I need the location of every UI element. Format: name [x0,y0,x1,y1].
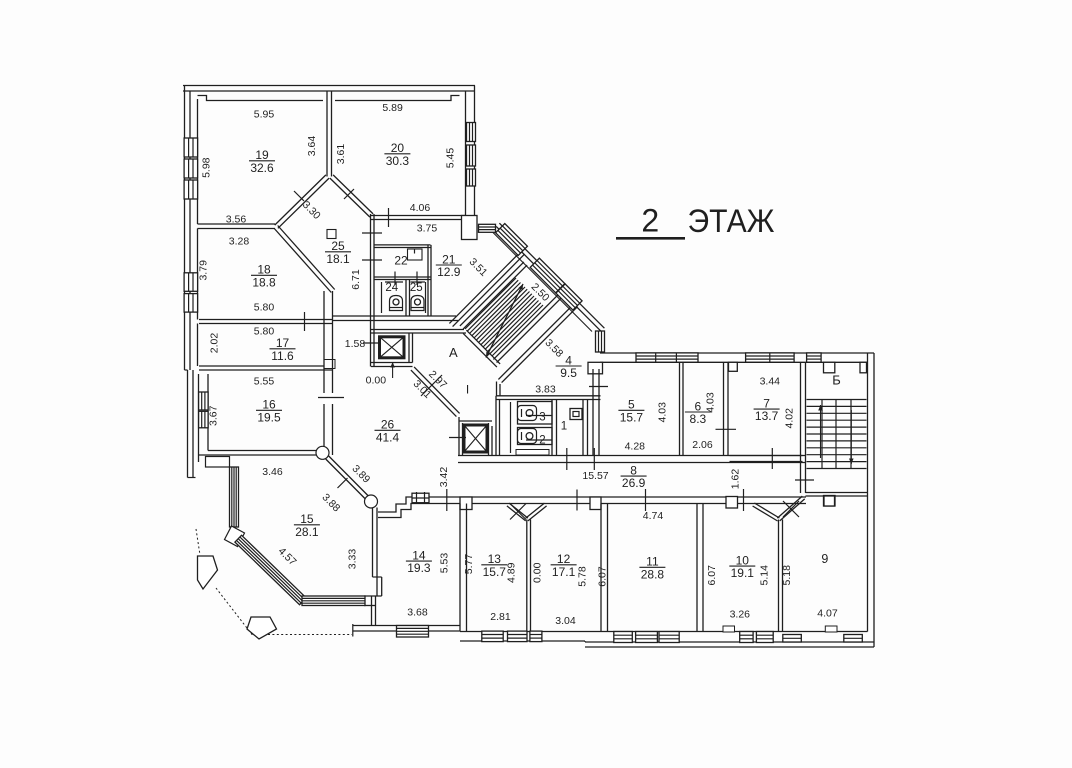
svg-text:3.61: 3.61 [335,144,347,165]
svg-text:8.3: 8.3 [690,412,707,426]
svg-text:17.1: 17.1 [552,565,576,579]
svg-text:4.07: 4.07 [817,608,838,620]
svg-text:4.03: 4.03 [705,392,717,413]
svg-text:19.1: 19.1 [731,566,755,580]
svg-text:4.28: 4.28 [625,441,646,453]
svg-text:4.03: 4.03 [657,402,669,423]
svg-text:24: 24 [385,282,398,294]
svg-text:5.18: 5.18 [781,565,793,586]
svg-text:32.6: 32.6 [250,161,274,175]
svg-text:9.5: 9.5 [560,366,577,380]
svg-text:5.95: 5.95 [254,109,275,121]
svg-text:5.78: 5.78 [577,566,589,587]
svg-text:3.56: 3.56 [226,214,247,226]
svg-text:2.81: 2.81 [490,611,511,623]
svg-text:3.83: 3.83 [535,384,556,396]
svg-text:18.1: 18.1 [326,252,350,266]
svg-text:1: 1 [561,421,567,433]
svg-text:4.74: 4.74 [643,510,664,522]
svg-text:6.07: 6.07 [597,566,609,587]
svg-text:2.06: 2.06 [692,439,713,451]
svg-text:2: 2 [641,203,659,239]
svg-text:13.7: 13.7 [755,409,779,423]
svg-text:15.7: 15.7 [483,565,507,579]
svg-text:3.28: 3.28 [229,235,250,247]
svg-text:5.45: 5.45 [445,148,457,169]
svg-text:5.80: 5.80 [254,302,275,314]
svg-text:3.42: 3.42 [438,467,450,488]
svg-text:11.6: 11.6 [271,349,294,363]
svg-text:19.3: 19.3 [407,561,431,575]
svg-text:9: 9 [821,552,828,566]
svg-text:0.00: 0.00 [366,375,387,387]
svg-text:6.71: 6.71 [350,269,362,290]
svg-text:3.04: 3.04 [555,615,576,627]
svg-text:ЭТАЖ: ЭТАЖ [688,203,775,239]
svg-text:2: 2 [539,435,545,447]
svg-text:3.44: 3.44 [760,375,781,387]
svg-text:15.7: 15.7 [620,410,644,424]
svg-text:1.62: 1.62 [730,469,742,490]
svg-text:6.07: 6.07 [706,565,718,586]
svg-text:3.79: 3.79 [198,260,210,281]
svg-text:4.02: 4.02 [783,408,795,429]
svg-text:30.3: 30.3 [386,154,410,168]
svg-text:2.02: 2.02 [209,333,221,354]
svg-text:19.5: 19.5 [257,410,281,424]
svg-text:28.8: 28.8 [641,567,665,581]
svg-text:3.33: 3.33 [347,549,359,570]
svg-text:А: А [449,345,458,360]
svg-text:5.55: 5.55 [254,376,275,388]
svg-text:3.75: 3.75 [417,223,438,235]
svg-text:4.89: 4.89 [505,562,517,583]
svg-text:I: I [466,383,469,397]
svg-text:28.1: 28.1 [295,525,319,539]
svg-text:3.26: 3.26 [730,609,751,621]
svg-text:25: 25 [410,282,423,294]
svg-text:3.67: 3.67 [208,405,220,426]
svg-text:41.4: 41.4 [376,430,400,444]
svg-text:5.53: 5.53 [439,553,451,574]
svg-text:15.57: 15.57 [582,470,608,482]
svg-text:18.8: 18.8 [252,275,276,289]
svg-text:1.58: 1.58 [345,338,366,350]
svg-text:0.00: 0.00 [532,562,544,583]
svg-text:5.89: 5.89 [382,102,403,114]
svg-text:26.9: 26.9 [622,476,646,490]
svg-text:5.14: 5.14 [758,565,770,586]
svg-text:3: 3 [539,412,545,424]
svg-text:Б: Б [832,373,841,388]
svg-text:5.80: 5.80 [254,326,275,338]
svg-text:3.46: 3.46 [262,466,283,478]
svg-text:5.77: 5.77 [463,554,475,575]
svg-text:22: 22 [394,254,408,268]
svg-text:3.64: 3.64 [306,136,318,157]
svg-text:12.9: 12.9 [437,265,461,279]
svg-text:5.98: 5.98 [200,157,212,178]
svg-text:3.68: 3.68 [407,607,428,619]
svg-text:4.06: 4.06 [410,202,431,214]
